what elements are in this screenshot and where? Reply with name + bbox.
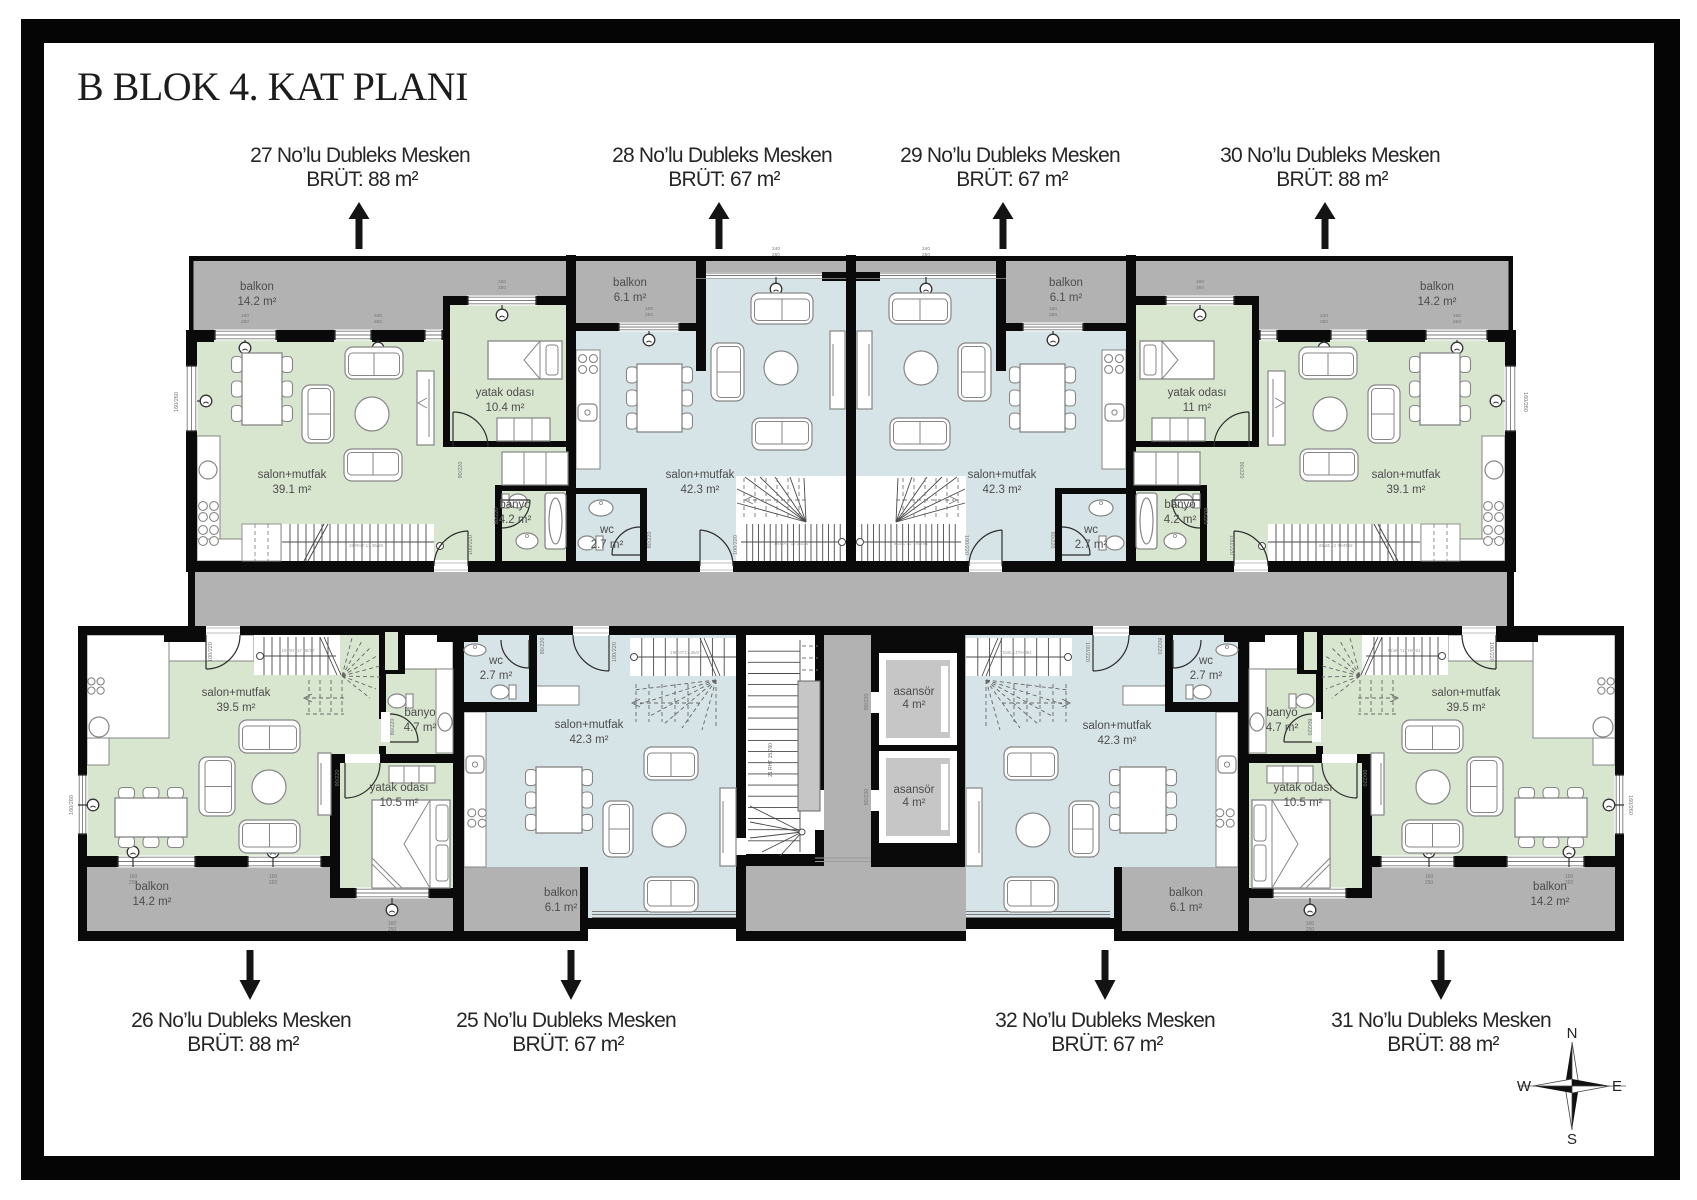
svg-text:30 No’lu Dubleks Mesken: 30 No’lu Dubleks Mesken xyxy=(1220,144,1440,167)
svg-text:salon+mutfak: salon+mutfak xyxy=(968,469,1037,481)
svg-text:160: 160 xyxy=(1453,313,1461,319)
svg-text:25 No’lu Dubleks Mesken: 25 No’lu Dubleks Mesken xyxy=(456,1009,676,1032)
svg-text:10.4 m²: 10.4 m² xyxy=(486,402,525,414)
svg-text:250: 250 xyxy=(645,312,653,318)
svg-text:250: 250 xyxy=(129,880,138,886)
svg-text:BRÜT: 88 m²: BRÜT: 88 m² xyxy=(1387,1033,1499,1056)
svg-text:80/220: 80/220 xyxy=(540,638,546,655)
svg-text:39.1 m²: 39.1 m² xyxy=(273,484,312,496)
svg-text:160/260: 160/260 xyxy=(1627,795,1633,815)
svg-text:wc: wc xyxy=(488,655,503,667)
svg-text:BRÜT: 88 m²: BRÜT: 88 m² xyxy=(306,168,418,191)
svg-text:90/220: 90/220 xyxy=(1361,770,1367,787)
svg-text:4.7 m²: 4.7 m² xyxy=(1266,722,1299,734)
svg-text:80/220: 80/220 xyxy=(390,719,396,736)
svg-text:80/220: 80/220 xyxy=(1156,638,1162,655)
svg-text:4.2 m²: 4.2 m² xyxy=(1164,514,1197,526)
svg-text:4 m²: 4 m² xyxy=(903,699,926,711)
svg-text:160: 160 xyxy=(1049,306,1057,312)
svg-text:90/220: 90/220 xyxy=(335,770,341,787)
svg-text:14.2 m²: 14.2 m² xyxy=(133,896,172,908)
svg-text:2.7 m²: 2.7 m² xyxy=(1190,670,1223,682)
svg-text:10.5 m²: 10.5 m² xyxy=(1284,797,1323,809)
svg-text:28 No’lu Dubleks Mesken: 28 No’lu Dubleks Mesken xyxy=(612,144,832,167)
svg-text:160: 160 xyxy=(498,279,506,285)
svg-text:42.3 m²: 42.3 m² xyxy=(1098,735,1137,747)
svg-text:27 No’lu Dubleks Mesken: 27 No’lu Dubleks Mesken xyxy=(250,144,470,167)
svg-text:250: 250 xyxy=(772,252,780,258)
svg-text:160/260: 160/260 xyxy=(69,795,75,815)
svg-text:balkon: balkon xyxy=(544,887,578,899)
svg-text:asansör: asansör xyxy=(894,784,935,796)
svg-text:80/220: 80/220 xyxy=(1049,532,1055,549)
svg-text:BRÜT: 88 m²: BRÜT: 88 m² xyxy=(187,1033,299,1056)
svg-text:250: 250 xyxy=(388,927,397,933)
svg-text:250: 250 xyxy=(1196,285,1204,291)
svg-text:balkon: balkon xyxy=(1533,881,1567,893)
svg-text:4 m²: 4 m² xyxy=(903,797,926,809)
svg-text:90/220: 90/220 xyxy=(458,462,464,479)
svg-text:250: 250 xyxy=(498,285,506,291)
svg-text:BRÜT: 88 m²: BRÜT: 88 m² xyxy=(1276,168,1388,191)
svg-text:80/220: 80/220 xyxy=(494,508,500,525)
svg-text:11 m²: 11 m² xyxy=(1183,402,1212,414)
svg-text:100/220: 100/220 xyxy=(1084,642,1090,662)
svg-text:balkon: balkon xyxy=(135,881,169,893)
svg-text:240: 240 xyxy=(922,246,930,252)
svg-text:42.3 m²: 42.3 m² xyxy=(681,484,720,496)
svg-text:250: 250 xyxy=(241,319,249,325)
svg-text:250: 250 xyxy=(1306,927,1315,933)
svg-text:10.5 m²: 10.5 m² xyxy=(380,797,419,809)
svg-text:BRÜT: 67 m²: BRÜT: 67 m² xyxy=(956,168,1068,191)
svg-text:6.1 m²: 6.1 m² xyxy=(545,902,578,914)
svg-text:240: 240 xyxy=(1320,313,1328,319)
svg-text:100/220: 100/220 xyxy=(963,535,969,555)
svg-text:6.1 m²: 6.1 m² xyxy=(1050,292,1083,304)
svg-text:160/260: 160/260 xyxy=(174,392,180,412)
svg-text:42.3 m²: 42.3 m² xyxy=(570,734,609,746)
svg-text:240: 240 xyxy=(772,246,780,252)
svg-text:90/220: 90/220 xyxy=(1238,462,1244,479)
svg-text:banyo: banyo xyxy=(404,707,435,719)
svg-text:100/220: 100/220 xyxy=(1228,535,1234,555)
svg-text:250: 250 xyxy=(1565,880,1574,886)
svg-text:6.1 m²: 6.1 m² xyxy=(1170,902,1203,914)
svg-text:2.7 m²: 2.7 m² xyxy=(1075,539,1108,551)
svg-text:asansör: asansör xyxy=(894,686,935,698)
svg-text:salon+mutfak: salon+mutfak xyxy=(555,719,624,731)
svg-text:2.7 m²: 2.7 m² xyxy=(480,670,513,682)
svg-text:N: N xyxy=(1567,1025,1578,1042)
svg-text:salon+mutfak: salon+mutfak xyxy=(666,469,735,481)
svg-text:250: 250 xyxy=(1453,319,1461,325)
svg-text:yatak odası: yatak odası xyxy=(370,782,429,794)
svg-text:250: 250 xyxy=(374,319,382,325)
svg-text:balkon: balkon xyxy=(1420,281,1454,293)
svg-text:balkon: balkon xyxy=(240,281,274,293)
svg-text:14.2 m²: 14.2 m² xyxy=(1531,896,1570,908)
svg-text:39.5 m²: 39.5 m² xyxy=(217,702,256,714)
svg-text:14.2 m²: 14.2 m² xyxy=(238,296,277,308)
svg-text:31 No’lu Dubleks Mesken: 31 No’lu Dubleks Mesken xyxy=(1331,1009,1551,1032)
svg-text:B BLOK 4. KAT PLANI: B BLOK 4. KAT PLANI xyxy=(77,64,468,109)
svg-text:80/220: 80/220 xyxy=(647,532,653,549)
svg-text:100/220: 100/220 xyxy=(208,642,214,662)
svg-text:2.7 m²: 2.7 m² xyxy=(591,539,624,551)
svg-text:100/220: 100/220 xyxy=(468,535,474,555)
svg-text:160: 160 xyxy=(241,313,249,319)
svg-text:salon+mutfak: salon+mutfak xyxy=(1083,720,1152,732)
svg-text:250: 250 xyxy=(1425,880,1434,886)
svg-text:S: S xyxy=(1567,1131,1577,1148)
svg-text:salon+mutfak: salon+mutfak xyxy=(258,469,327,481)
svg-text:yatak odası: yatak odası xyxy=(1168,387,1227,399)
svg-text:80/220: 80/220 xyxy=(1202,508,1208,525)
svg-text:100/220: 100/220 xyxy=(1488,642,1494,662)
svg-text:250: 250 xyxy=(1320,319,1328,325)
svg-text:banyo: banyo xyxy=(1266,707,1297,719)
svg-text:90/220: 90/220 xyxy=(864,694,870,711)
svg-text:wc: wc xyxy=(1083,524,1098,536)
svg-text:BRÜT: 67 m²: BRÜT: 67 m² xyxy=(1051,1033,1163,1056)
svg-text:BRÜT: 67 m²: BRÜT: 67 m² xyxy=(512,1033,624,1056)
svg-text:90/220: 90/220 xyxy=(864,789,870,806)
svg-text:E: E xyxy=(1612,1078,1622,1095)
svg-text:160: 160 xyxy=(1196,279,1204,285)
svg-text:banyo: banyo xyxy=(499,499,530,511)
svg-text:balkon: balkon xyxy=(1169,887,1203,899)
svg-text:wc: wc xyxy=(599,524,614,536)
svg-text:100/220: 100/220 xyxy=(733,535,739,555)
svg-text:39.1 m²: 39.1 m² xyxy=(1387,484,1426,496)
svg-text:250: 250 xyxy=(269,880,278,886)
svg-text:balkon: balkon xyxy=(1049,277,1083,289)
svg-text:80/220: 80/220 xyxy=(1306,719,1312,736)
svg-text:160: 160 xyxy=(645,306,653,312)
svg-text:wc: wc xyxy=(1198,655,1213,667)
svg-text:4.2 m²: 4.2 m² xyxy=(499,514,532,526)
svg-text:42.3 m²: 42.3 m² xyxy=(983,484,1022,496)
svg-text:250: 250 xyxy=(1049,312,1057,318)
svg-text:salon+mutfak: salon+mutfak xyxy=(202,687,271,699)
svg-text:salon+mutfak: salon+mutfak xyxy=(1432,687,1501,699)
svg-text:banyo: banyo xyxy=(1164,499,1195,511)
svg-text:32 No’lu Dubleks Mesken: 32 No’lu Dubleks Mesken xyxy=(995,1009,1215,1032)
svg-text:26 No’lu Dubleks Mesken: 26 No’lu Dubleks Mesken xyxy=(131,1009,351,1032)
svg-text:6.1 m²: 6.1 m² xyxy=(614,292,647,304)
svg-text:21 RHT 15.780: 21 RHT 15.780 xyxy=(768,743,774,777)
svg-text:balkon: balkon xyxy=(613,277,647,289)
svg-text:160/260: 160/260 xyxy=(1522,392,1528,412)
svg-text:yatak odası: yatak odası xyxy=(476,387,535,399)
svg-text:29 No’lu Dubleks Mesken: 29 No’lu Dubleks Mesken xyxy=(900,144,1120,167)
svg-text:W: W xyxy=(1517,1078,1532,1095)
svg-text:14.2 m²: 14.2 m² xyxy=(1418,296,1457,308)
svg-text:240: 240 xyxy=(374,313,382,319)
svg-text:39.5 m²: 39.5 m² xyxy=(1447,702,1486,714)
svg-text:BRÜT: 67 m²: BRÜT: 67 m² xyxy=(668,168,780,191)
svg-text:100/220: 100/220 xyxy=(612,642,618,662)
svg-text:yatak odası: yatak odası xyxy=(1274,782,1333,794)
svg-text:4.7 m²: 4.7 m² xyxy=(404,722,437,734)
svg-text:salon+mutfak: salon+mutfak xyxy=(1372,469,1441,481)
svg-text:250: 250 xyxy=(922,252,930,258)
